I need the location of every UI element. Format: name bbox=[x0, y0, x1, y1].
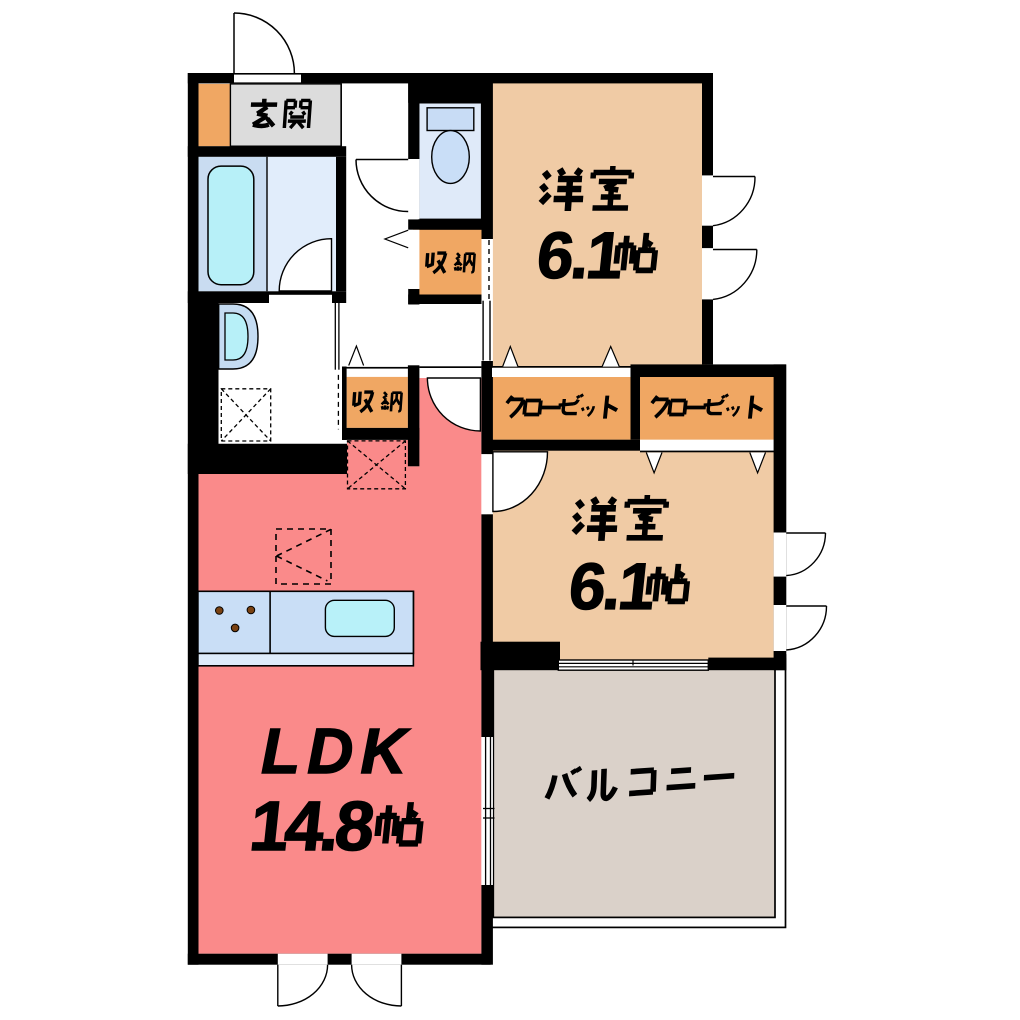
svg-text:6.1: 6.1 bbox=[565, 550, 657, 624]
svg-text:6.1: 6.1 bbox=[533, 219, 625, 293]
svg-text:14.8: 14.8 bbox=[246, 786, 376, 865]
svg-text:LDK: LDK bbox=[261, 715, 414, 787]
